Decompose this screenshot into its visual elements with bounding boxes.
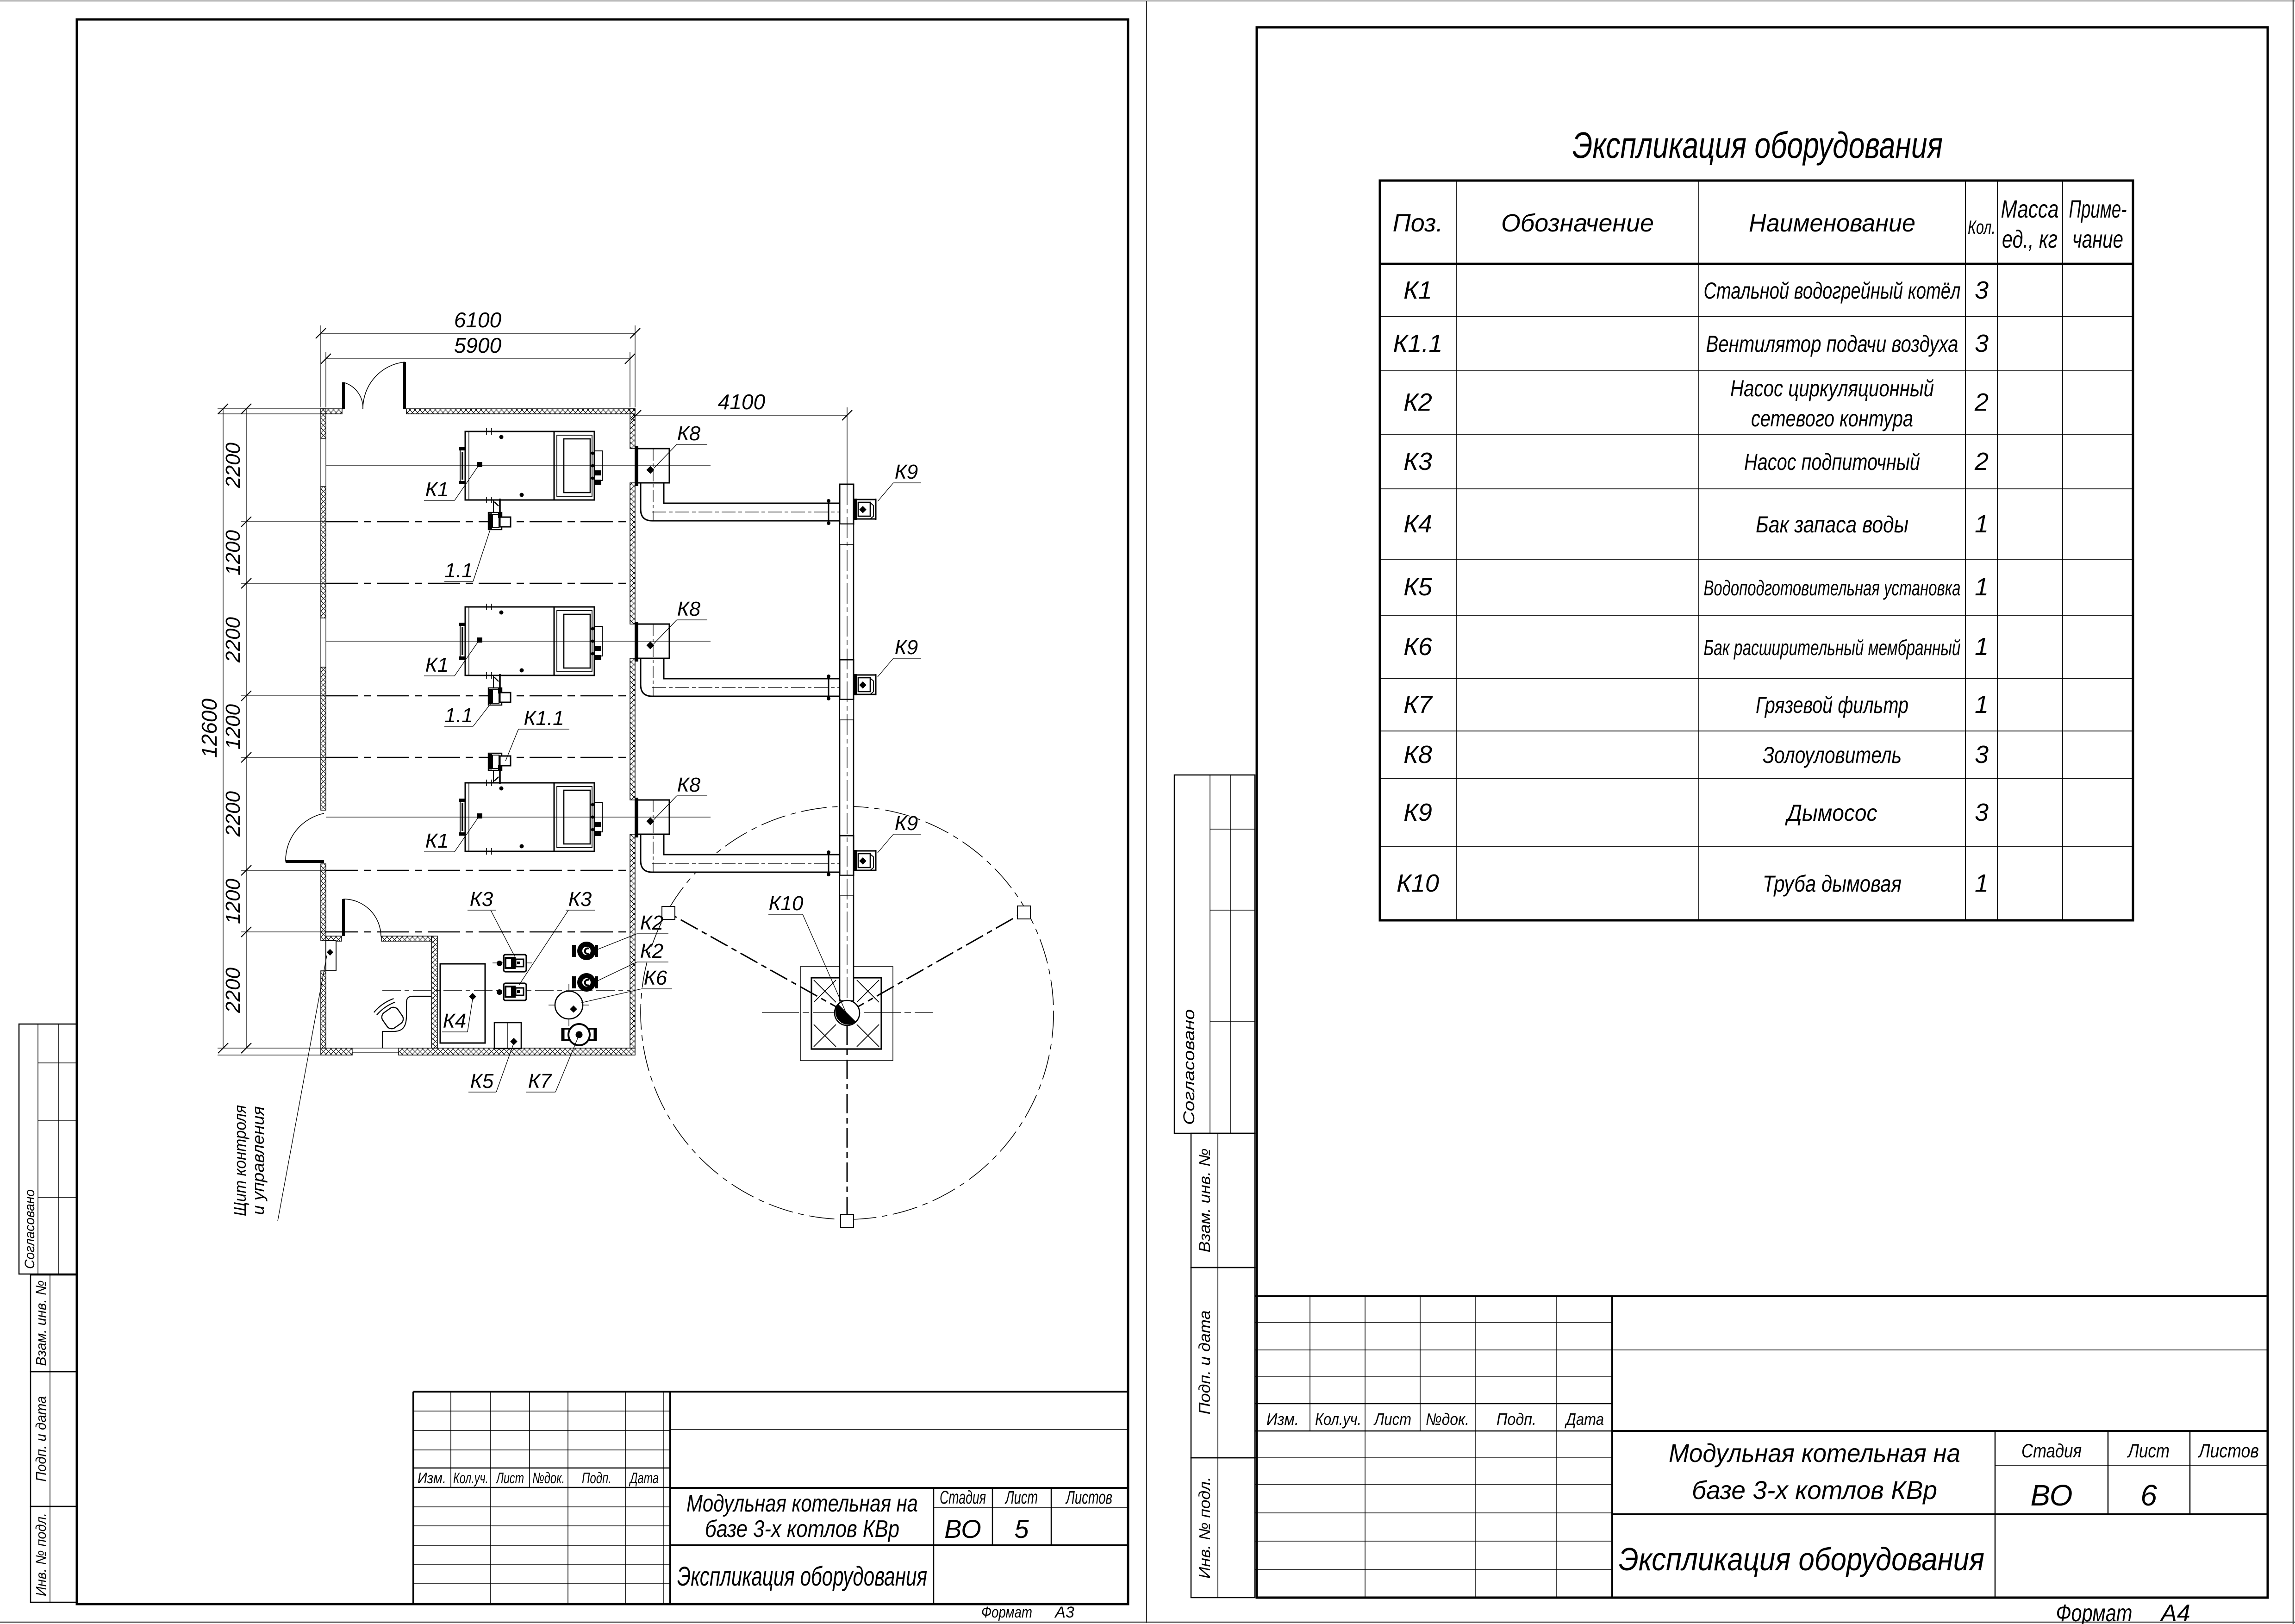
svg-text:К1: К1 bbox=[1403, 276, 1432, 304]
svg-text:Листов: Листов bbox=[1065, 1487, 1112, 1508]
svg-text:Щит контроля: Щит контроля bbox=[231, 1105, 249, 1216]
svg-text:4100: 4100 bbox=[718, 390, 766, 414]
svg-text:Вентилятор подачи воздуха: Вентилятор подачи воздуха bbox=[1706, 331, 1958, 357]
svg-text:К9: К9 bbox=[1403, 799, 1432, 826]
svg-text:базе 3-х котлов КВр: базе 3-х котлов КВр bbox=[705, 1516, 899, 1543]
svg-text:1.1: 1.1 bbox=[444, 559, 473, 582]
svg-text:3: 3 bbox=[1975, 799, 1989, 826]
svg-text:Бак запаса воды: Бак запаса воды bbox=[1756, 512, 1908, 537]
svg-text:Подп.: Подп. bbox=[582, 1469, 611, 1487]
svg-text:К5: К5 bbox=[470, 1070, 494, 1093]
svg-text:Дата: Дата bbox=[629, 1469, 659, 1487]
svg-text:1200: 1200 bbox=[222, 530, 244, 575]
svg-text:чание: чание bbox=[2072, 225, 2123, 253]
svg-text:1: 1 bbox=[1975, 633, 1989, 661]
svg-text:1.1: 1.1 bbox=[444, 704, 473, 727]
svg-text:К6: К6 bbox=[644, 967, 667, 989]
svg-text:Модульная котельная на: Модульная котельная на bbox=[686, 1490, 918, 1517]
svg-text:Взам. инв. №: Взам. инв. № bbox=[33, 1280, 49, 1366]
svg-text:Лист: Лист bbox=[1373, 1410, 1411, 1429]
svg-text:№док.: №док. bbox=[1426, 1410, 1469, 1429]
svg-text:сетевого контура: сетевого контура bbox=[1751, 406, 1913, 431]
svg-text:Лист: Лист bbox=[1004, 1487, 1038, 1508]
svg-text:К3: К3 bbox=[470, 888, 493, 911]
svg-text:Бак расширительный мембранный: Бак расширительный мембранный bbox=[1704, 636, 1961, 660]
svg-text:К10: К10 bbox=[769, 892, 804, 915]
svg-text:Формат: Формат bbox=[2056, 1600, 2133, 1624]
svg-text:Подп. и дата: Подп. и дата bbox=[33, 1396, 49, 1482]
svg-text:3: 3 bbox=[1975, 330, 1989, 357]
svg-text:Согласовано: Согласовано bbox=[1180, 1009, 1198, 1125]
svg-text:2: 2 bbox=[1974, 448, 1989, 475]
svg-text:К1.1: К1.1 bbox=[1393, 330, 1443, 357]
svg-text:Инв. № подл.: Инв. № подл. bbox=[1196, 1477, 1214, 1579]
svg-text:Насос циркуляционный: Насос циркуляционный bbox=[1730, 375, 1934, 401]
svg-text:Изм.: Изм. bbox=[418, 1469, 446, 1487]
svg-text:К1.1: К1.1 bbox=[524, 707, 564, 730]
svg-text:К3: К3 bbox=[568, 888, 592, 911]
svg-text:Лист: Лист bbox=[496, 1469, 524, 1487]
svg-text:Поз.: Поз. bbox=[1393, 209, 1443, 237]
svg-text:2200: 2200 bbox=[222, 443, 244, 488]
svg-text:1: 1 bbox=[1975, 869, 1989, 897]
svg-text:К1: К1 bbox=[425, 654, 449, 676]
svg-text:А3: А3 bbox=[1054, 1604, 1074, 1621]
svg-text:Водоподготовительная установка: Водоподготовительная установка bbox=[1704, 576, 1961, 600]
svg-text:Стальной водогрейный котёл: Стальной водогрейный котёл bbox=[1704, 278, 1961, 304]
svg-text:1200: 1200 bbox=[222, 879, 244, 924]
svg-text:К10: К10 bbox=[1397, 869, 1439, 897]
svg-text:Формат: Формат bbox=[981, 1604, 1032, 1621]
svg-text:5: 5 bbox=[1014, 1514, 1029, 1543]
svg-text:К4: К4 bbox=[443, 1010, 466, 1032]
svg-text:К1: К1 bbox=[425, 830, 449, 852]
svg-text:3: 3 bbox=[1975, 276, 1989, 304]
svg-text:Подп.: Подп. bbox=[1497, 1410, 1536, 1429]
svg-text:К1: К1 bbox=[425, 478, 449, 501]
svg-text:Листов: Листов bbox=[2197, 1440, 2259, 1462]
svg-text:и управления: и управления bbox=[249, 1106, 268, 1215]
svg-text:Стадия: Стадия bbox=[2021, 1440, 2082, 1462]
svg-text:Дымосос: Дымосос bbox=[1785, 800, 1877, 826]
svg-text:1: 1 bbox=[1975, 510, 1989, 538]
svg-text:Экспликация оборудования: Экспликация оборудования bbox=[677, 1562, 927, 1592]
svg-text:Подп. и дата: Подп. и дата bbox=[1196, 1311, 1214, 1415]
svg-text:Дата: Дата bbox=[1565, 1410, 1604, 1429]
svg-text:Стадия: Стадия bbox=[940, 1487, 986, 1508]
svg-text:Труба дымовая: Труба дымовая bbox=[1763, 871, 1902, 897]
svg-text:Лист: Лист bbox=[2127, 1440, 2170, 1462]
svg-text:2200: 2200 bbox=[222, 617, 244, 663]
svg-text:Экспликация оборудования: Экспликация оборудования bbox=[1572, 125, 1943, 166]
svg-text:3: 3 bbox=[1975, 741, 1989, 768]
svg-text:5900: 5900 bbox=[454, 333, 502, 357]
svg-text:Приме-: Приме- bbox=[2069, 195, 2127, 223]
svg-text:12600: 12600 bbox=[197, 699, 221, 758]
svg-text:Наименование: Наименование bbox=[1749, 209, 1915, 237]
svg-text:Кол.уч.: Кол.уч. bbox=[1315, 1410, 1361, 1429]
svg-text:6100: 6100 bbox=[454, 308, 502, 332]
svg-text:К4: К4 bbox=[1403, 510, 1432, 538]
svg-text:базе 3-х котлов КВр: базе 3-х котлов КВр bbox=[1692, 1475, 1937, 1505]
svg-text:Грязевой фильтр: Грязевой фильтр bbox=[1756, 692, 1908, 718]
svg-text:1: 1 bbox=[1975, 573, 1989, 601]
svg-text:Экспликация оборудования: Экспликация оборудования bbox=[1619, 1541, 1984, 1577]
svg-text:Масса: Масса bbox=[2001, 195, 2059, 223]
svg-text:К8: К8 bbox=[1403, 741, 1432, 768]
svg-text:А4: А4 bbox=[2159, 1600, 2190, 1624]
svg-text:Согласовано: Согласовано bbox=[22, 1189, 37, 1269]
svg-text:Золоуловитель: Золоуловитель bbox=[1763, 742, 1902, 768]
svg-text:2200: 2200 bbox=[222, 968, 244, 1013]
svg-text:Кол.уч.: Кол.уч. bbox=[453, 1469, 488, 1487]
svg-text:К2: К2 bbox=[640, 940, 663, 962]
svg-text:Взам. инв. №: Взам. инв. № bbox=[1196, 1149, 1214, 1253]
svg-text:ВО: ВО bbox=[944, 1514, 981, 1543]
svg-text:1: 1 bbox=[1975, 691, 1989, 718]
svg-text:К6: К6 bbox=[1403, 633, 1433, 661]
svg-text:Инв. № подл.: Инв. № подл. bbox=[33, 1513, 49, 1596]
svg-text:К2: К2 bbox=[1403, 388, 1432, 416]
svg-text:Изм.: Изм. bbox=[1266, 1410, 1299, 1429]
svg-text:№док.: №док. bbox=[532, 1469, 565, 1487]
svg-text:Кол.: Кол. bbox=[1968, 216, 1996, 238]
svg-text:2: 2 bbox=[1974, 388, 1989, 416]
svg-text:Обозначение: Обозначение bbox=[1501, 209, 1654, 237]
svg-text:1200: 1200 bbox=[222, 704, 244, 750]
svg-text:Модульная котельная на: Модульная котельная на bbox=[1669, 1438, 1960, 1468]
svg-text:К5: К5 bbox=[1403, 573, 1433, 601]
svg-text:Насос подпиточный: Насос подпиточный bbox=[1744, 449, 1920, 475]
svg-text:К7: К7 bbox=[528, 1070, 552, 1093]
svg-text:К7: К7 bbox=[1403, 691, 1433, 718]
svg-text:2200: 2200 bbox=[222, 791, 244, 837]
svg-text:К2: К2 bbox=[640, 912, 663, 934]
svg-text:6: 6 bbox=[2140, 1479, 2157, 1512]
svg-text:ед., кг: ед., кг bbox=[2002, 225, 2058, 253]
svg-text:ВО: ВО bbox=[2030, 1479, 2072, 1512]
svg-text:К3: К3 bbox=[1403, 448, 1432, 475]
